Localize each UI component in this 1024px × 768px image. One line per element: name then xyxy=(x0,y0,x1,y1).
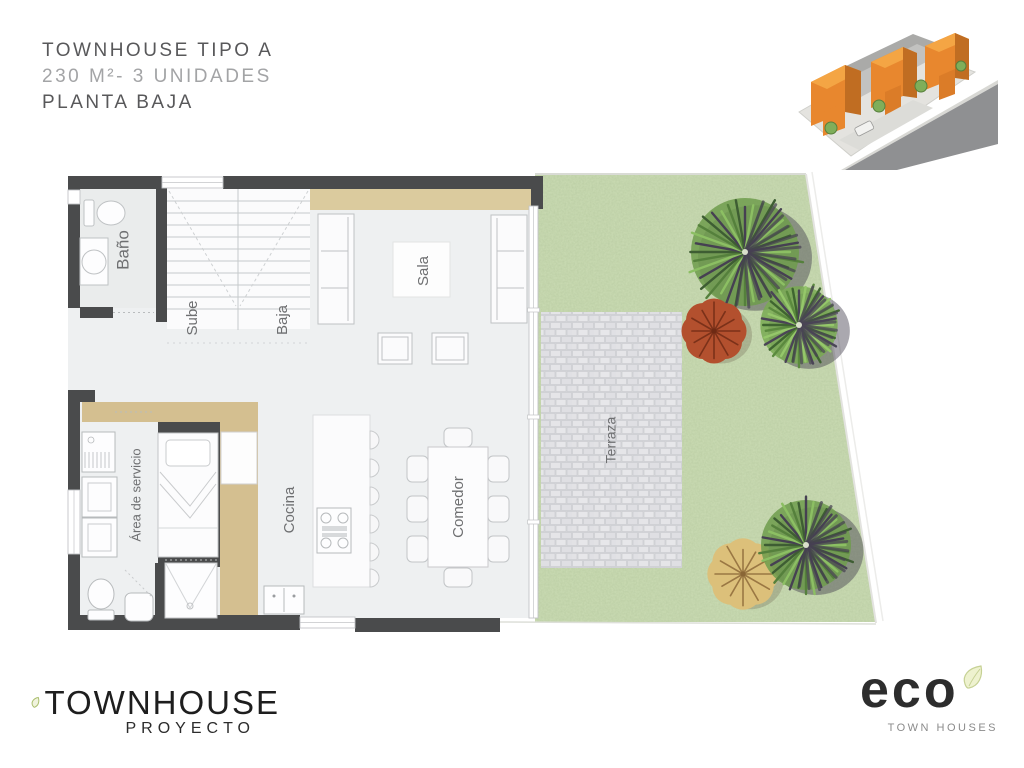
laundry-sink xyxy=(82,432,115,472)
3d-render-thumbnail xyxy=(793,20,998,170)
label-terraza: Terraza xyxy=(603,416,619,463)
floor-plan-page: TOWNHOUSE TIPO A 230 M²- 3 UNIDADES PLAN… xyxy=(0,0,1024,768)
label-sala: Sala xyxy=(415,255,432,286)
brand-left: TOWNHOUSE PROYECTO xyxy=(30,684,280,738)
brand-right: eco TOWN HOUSES xyxy=(860,660,1000,734)
shower xyxy=(165,563,217,618)
page-title: TOWNHOUSE TIPO A xyxy=(42,38,273,64)
brand-name: TOWNHOUSE xyxy=(44,684,280,722)
label-baja: Baja xyxy=(274,304,291,335)
title-block: TOWNHOUSE TIPO A 230 M²- 3 UNIDADES PLAN… xyxy=(42,38,273,116)
sala-accent-strip xyxy=(310,189,535,210)
brand-subtitle: PROYECTO xyxy=(30,720,255,738)
eco-logo-text: eco xyxy=(860,661,959,719)
garden-bottom-boundary xyxy=(500,622,876,624)
label-sube: Sube xyxy=(184,300,201,335)
label-bano: Baño xyxy=(113,230,132,270)
floor-plan: Baño Sube Baja Sala Cocina Comedor Área … xyxy=(60,168,900,636)
label-cocina: Cocina xyxy=(281,486,298,533)
page-subtitle-area: 230 M²- 3 UNIDADES xyxy=(42,64,273,90)
eco-leaf-icon xyxy=(959,664,985,694)
label-servicio: Área de servicio xyxy=(128,448,143,541)
label-comedor: Comedor xyxy=(450,476,467,538)
eco-logo-subtitle: TOWN HOUSES xyxy=(860,722,998,734)
service-sink xyxy=(125,593,153,621)
service-toilet xyxy=(88,579,114,609)
leaf-icon xyxy=(30,693,42,713)
fridge xyxy=(221,432,257,484)
page-subtitle-floor: PLANTA BAJA xyxy=(42,90,273,116)
